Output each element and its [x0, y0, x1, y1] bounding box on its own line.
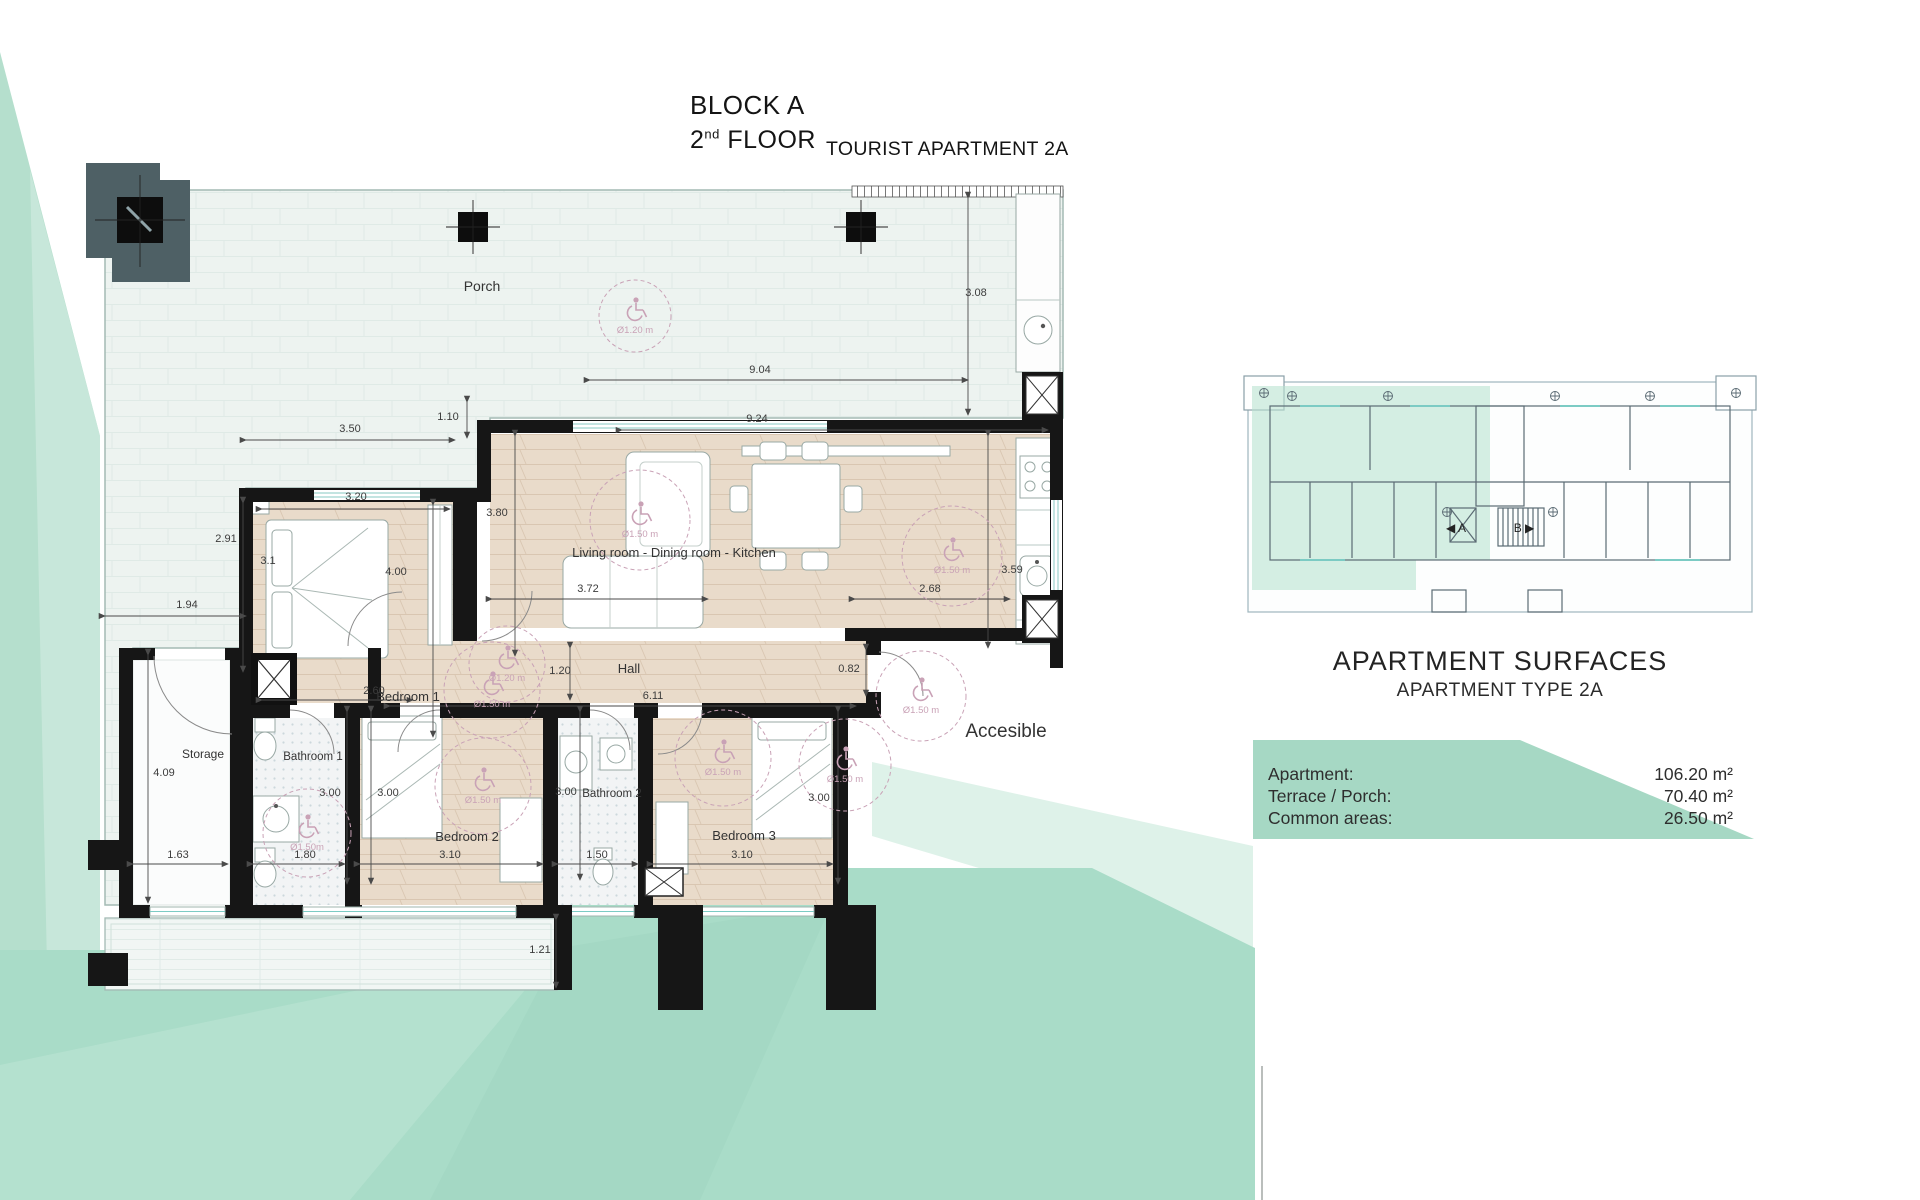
dimension-label: 3.20	[345, 491, 366, 503]
dimension-label: 3.72	[577, 583, 598, 595]
dimension-label: 3.00	[377, 787, 398, 799]
floor-word: FLOOR	[720, 126, 816, 154]
wardrobe	[656, 802, 688, 874]
chair	[844, 486, 862, 512]
turning-radius-label: Ø1.50 m	[465, 795, 502, 806]
dimension-label: 6.11	[643, 690, 664, 702]
room-label: Bedroom 1	[376, 689, 440, 704]
dimension-label: 3.10	[731, 849, 752, 861]
surfaces-table: Apartment:106.20 m²Terrace / Porch:70.40…	[1255, 763, 1741, 829]
dimension-label: 1.20	[549, 665, 570, 677]
surface-row-value: 106.20 m²	[1654, 763, 1733, 785]
dimension-label: 4.00	[385, 566, 406, 578]
vanity-sink	[253, 796, 299, 842]
chair	[730, 486, 748, 512]
dimension-label: 0.82	[838, 663, 859, 675]
surface-row-label: Apartment:	[1268, 763, 1354, 785]
room-label: Storage	[182, 747, 224, 761]
floor-number: 2	[690, 126, 704, 154]
porch-counter	[1016, 194, 1060, 372]
turning-radius-circle	[876, 651, 966, 741]
surface-row: Apartment:106.20 m²	[1255, 763, 1741, 785]
wardrobe	[500, 798, 542, 882]
turning-radius-label: Ø1.50 m	[622, 529, 659, 540]
surface-row-value: 26.50 m²	[1664, 807, 1733, 829]
title-floor: 2nd FLOOR	[690, 126, 816, 155]
accessibility-circle: Ø1.50 m	[876, 651, 966, 741]
room-label: Bathroom 2	[582, 788, 641, 800]
keyplan-label-b: B ▶	[1514, 521, 1535, 535]
dimension-label: 2.91	[215, 533, 236, 545]
dimension-label: 1.94	[176, 599, 197, 611]
dimension-label: 3.80	[486, 507, 507, 519]
dining-table	[752, 464, 840, 548]
dimension-label: 1.63	[167, 849, 188, 861]
plan-sheet: Ø1.20 mØ1.20 mØ1.50 mØ1.50 mØ1.50 mØ1.50…	[0, 0, 1920, 1200]
dimension-label: 3.1	[260, 555, 275, 567]
dimension-label: 9.04	[749, 364, 770, 376]
room-label: Porch	[464, 278, 501, 294]
room-label: Bedroom 2	[435, 829, 499, 844]
dimension-label: 3.59	[1001, 564, 1022, 576]
turning-radius-label: Ø1.50 m	[705, 767, 742, 778]
floorplan-canvas: Ø1.20 mØ1.20 mØ1.50 mØ1.50 mØ1.50 mØ1.50…	[0, 0, 1920, 1200]
dimension-label: 1.21	[529, 944, 550, 956]
dimension-label: 1.50	[586, 849, 607, 861]
turning-radius-label: Ø1.50 m	[934, 565, 971, 576]
lower-terrace	[105, 918, 557, 990]
dimension-label: 3.00	[808, 792, 829, 804]
room-label: Bathroom 1	[283, 751, 342, 763]
dimension-label: 9.24	[746, 413, 767, 425]
surface-row: Terrace / Porch:70.40 m²	[1255, 785, 1741, 807]
surface-row-value: 70.40 m²	[1664, 785, 1733, 807]
turning-radius-label: Ø1.50 m	[827, 774, 864, 785]
dimension-label: 4.09	[153, 767, 174, 779]
surfaces-title: APARTMENT SURFACES	[1200, 646, 1800, 677]
dimension-label: 3.08	[965, 287, 986, 299]
turning-radius-label: Ø1.50 m	[903, 705, 940, 716]
surface-row-label: Common areas:	[1268, 807, 1393, 829]
surfaces-subtitle: APARTMENT TYPE 2A	[1200, 680, 1800, 702]
room-label: Hall	[618, 661, 641, 676]
room-label: Bedroom 3	[712, 828, 776, 843]
dimension-label: 1.10	[437, 411, 458, 423]
dimension-label: 1.80	[294, 849, 315, 861]
boiler	[600, 738, 632, 770]
room-label: Accesible	[965, 721, 1046, 742]
turning-radius-label: Ø1.20 m	[617, 325, 654, 336]
bidet	[255, 848, 275, 862]
chair	[760, 442, 786, 460]
room-label: Living room - Dining room - Kitchen	[572, 545, 776, 560]
surface-row-label: Terrace / Porch:	[1268, 785, 1392, 807]
toilet	[255, 718, 275, 732]
surface-row: Common areas:26.50 m²	[1255, 807, 1741, 829]
title-apartment: TOURIST APARTMENT 2A	[826, 138, 1069, 161]
title-block-name: BLOCK A	[690, 90, 805, 121]
dimension-label: 3.00	[555, 786, 576, 798]
key-plan: ◀ A B ▶	[1244, 376, 1756, 612]
dimension-label: 3.00	[319, 787, 340, 799]
floor-ordinal: nd	[704, 127, 719, 142]
chair	[802, 442, 828, 460]
keyplan-label-a: ◀ A	[1446, 521, 1466, 535]
turning-radius-label: Ø1.50 m	[474, 699, 511, 710]
dimension-label: 3.50	[339, 423, 360, 435]
dimension-label: 3.10	[439, 849, 460, 861]
chair	[802, 552, 828, 570]
dimension-label: 2.68	[919, 583, 940, 595]
